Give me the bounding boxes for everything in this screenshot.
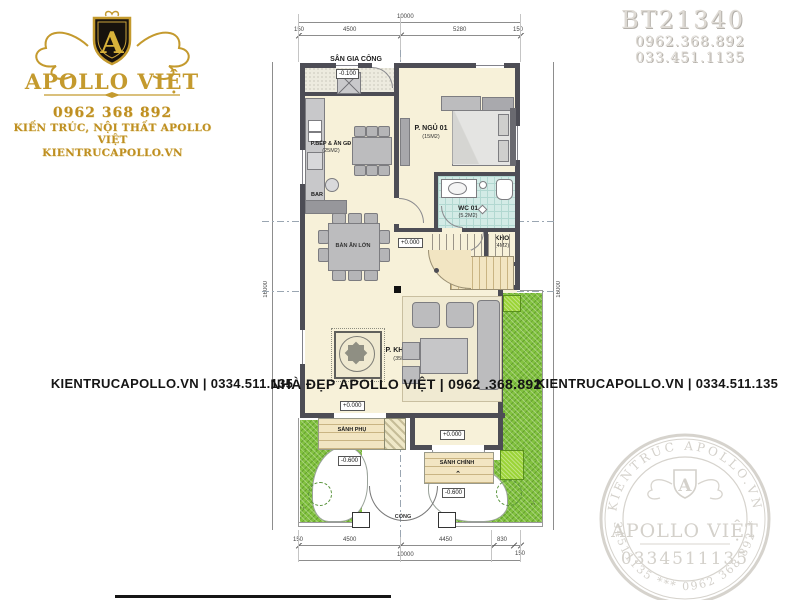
shrub-dots: ∴ [531, 499, 535, 507]
level-marker-san: -0.100 [336, 69, 359, 79]
wall-interior-wc-left [434, 172, 438, 232]
wall-extension-left [410, 418, 415, 447]
window-top-bedroom [476, 63, 504, 68]
chair [379, 230, 390, 244]
crest-graphic: A APOLLO VIỆT [0, 8, 225, 100]
chair [348, 213, 362, 224]
planter-box [503, 295, 521, 312]
crest-top-ornament [106, 12, 119, 16]
shrub-dots: ∴ [300, 503, 304, 511]
project-code-block: BT21340 0962.368.892 033.451.1135 [621, 6, 745, 66]
bar-counter [305, 200, 347, 214]
stamp-brand: APOLLO VIỆT [610, 520, 759, 542]
chair [354, 126, 366, 137]
bed-blanket-fold [452, 110, 482, 164]
dim-tick [518, 542, 524, 548]
chair [332, 270, 346, 281]
dim-ext-line [298, 14, 299, 62]
stamp-flourish-left [648, 480, 672, 499]
wardrobe [441, 96, 481, 111]
page-edge-bar [115, 595, 391, 598]
chair [332, 213, 346, 224]
dim-line-top-total [298, 22, 521, 23]
chair [366, 126, 378, 137]
dim-top-seg-2: 5280 [452, 27, 467, 33]
gate-post-right [438, 512, 456, 528]
door-gap-wc [442, 228, 462, 232]
stamp-outer-ring [601, 435, 769, 600]
watermark-right: KIENTRUCAPOLLO.VN | 0334.511.135 [536, 376, 778, 391]
dining-table-6 [352, 137, 392, 165]
watermark-left: KIENTRUCAPOLLO.VN | 0334.511.135 [51, 376, 293, 391]
planter-box [500, 450, 524, 480]
brand-phone: 0962 368 892 [0, 105, 225, 121]
kitchen-sink [308, 120, 322, 132]
room-area-wc01: (5.2M2) [448, 213, 488, 219]
chair [378, 165, 390, 176]
chair [364, 270, 378, 281]
dim-top-pad-left: 150 [293, 27, 305, 33]
brand-crest: A APOLLO VIỆT 0962 368 892 KIẾN TRÚC, NỘ… [0, 8, 225, 159]
crest-monogram: A [99, 26, 124, 61]
bed-pillow [498, 140, 509, 162]
side-table [402, 342, 420, 360]
dim-top-total: 10000 [396, 14, 415, 20]
kitchen-cooktop [307, 152, 323, 170]
room-label-sanh-chinh: SẢNH CHÍNH [430, 460, 484, 466]
kitchen-stool [325, 178, 339, 192]
fence-right [542, 290, 543, 526]
chair [378, 126, 390, 137]
chair [318, 248, 329, 262]
dim-ext-line [298, 530, 299, 562]
axis-intersection-marker [394, 286, 401, 293]
dim-left-total: 16000 [263, 280, 269, 299]
technical-box [384, 418, 406, 450]
chair [364, 213, 378, 224]
floor-plan-page: A APOLLO VIỆT 0962 368 892 KIẾN TRÚC, NỘ… [0, 0, 800, 600]
room-label-bep: P.BẾP & ĂN GĐ [310, 141, 352, 147]
bed-pillow [498, 114, 509, 136]
chair [379, 248, 390, 262]
dim-line-right [553, 62, 554, 530]
room-area-ngu01: (15M2) [406, 134, 456, 140]
level-marker-minus-1: -0.600 [338, 456, 361, 466]
armchair [412, 302, 440, 328]
dim-line-bottom-total [298, 560, 521, 561]
bed-headboard [510, 108, 516, 166]
project-phone-2: 033.451.1135 [621, 50, 745, 66]
tree-symbol [308, 482, 332, 506]
dim-top-pad-right: 150 [512, 27, 524, 33]
stamp-monogram: A [677, 476, 692, 496]
dim-line-top-segments [298, 35, 521, 36]
dim-tick [518, 32, 524, 38]
brand-website: KIENTRUCAPOLLO.VN [0, 147, 225, 159]
fence-right-top [520, 290, 542, 291]
wall-interior-wc-top [434, 172, 520, 176]
chair [366, 165, 378, 176]
coffee-table [420, 338, 468, 374]
tree-symbol [496, 480, 522, 506]
dim-bottom-seg-1: 4500 [342, 537, 357, 543]
wc-shower-head [479, 181, 487, 189]
dim-bottom-seg-3: 830 [496, 537, 508, 543]
level-marker-ground-2: +0.000 [340, 401, 365, 411]
room-label-ngu01: P. NGỦ 01 [406, 125, 456, 132]
dim-right-total: 16000 [556, 280, 562, 299]
entry-arrow: ⌃ [452, 470, 464, 478]
chair [354, 165, 366, 176]
fence-left [298, 418, 299, 526]
stair-newel-post [434, 268, 439, 273]
stamp-phone: 0334511135 [621, 549, 749, 569]
gate-post-left [352, 512, 370, 528]
wc-sink [448, 182, 467, 195]
dim-line-left [272, 62, 273, 530]
room-label-wc01: WC 01 [448, 205, 488, 212]
room-area-bep: (25M2) [310, 148, 352, 154]
project-phone-1: 0962.368.892 [621, 34, 745, 50]
dim-bottom-total: 10000 [396, 552, 415, 558]
window-left-living [300, 330, 305, 364]
chair [318, 230, 329, 244]
watermark-center: NHÀ ĐẸP APOLLO VIỆT | 0962 .368.892 [270, 376, 541, 392]
room-label-san-gia-cong: SÂN GIA CÔNG [316, 56, 396, 63]
dim-line-bottom-segments [298, 545, 521, 546]
dim-ext-line [520, 14, 521, 62]
wc-toilet [496, 179, 513, 200]
brand-tagline: KIẾN TRÚC, NỘI THẤT APOLLO VIỆT [0, 122, 225, 146]
room-label-sanh-phu: SẢNH PHỤ [322, 427, 382, 433]
brand-stamp: KIENTRUC APOLLO.VN 0334511135 *** 0962 3… [598, 432, 773, 600]
label-cong: CỔNG [392, 514, 414, 520]
fence-bottom-right [452, 522, 543, 523]
room-label-bar: BAR [305, 192, 329, 198]
brand-name: APOLLO VIỆT [24, 69, 199, 94]
label-ban-an-lon: BÀN ĂN LỚN [333, 243, 373, 249]
dim-ext-line [520, 530, 521, 562]
porch-steps-right [424, 452, 494, 484]
fence-bottom-left-2 [298, 526, 356, 527]
dim-bottom-seg-2: 4450 [438, 537, 453, 543]
dim-top-seg-1: 4500 [342, 27, 357, 33]
level-marker-minus-2: -0.600 [442, 488, 465, 498]
level-marker-ground-1: +0.000 [398, 238, 423, 248]
dim-ext-line [491, 530, 492, 562]
wall-right-upper [515, 63, 520, 290]
armchair [446, 302, 474, 328]
wall-extension-right [498, 418, 503, 447]
project-code: BT21340 [621, 6, 745, 34]
chair [348, 270, 362, 281]
stamp-flourish-right [698, 480, 722, 499]
window-top-kitchen [336, 63, 358, 68]
level-marker-ground-3: +0.000 [440, 430, 465, 440]
fence-bottom-left [298, 522, 356, 523]
fence-bottom-right-2 [452, 526, 543, 527]
